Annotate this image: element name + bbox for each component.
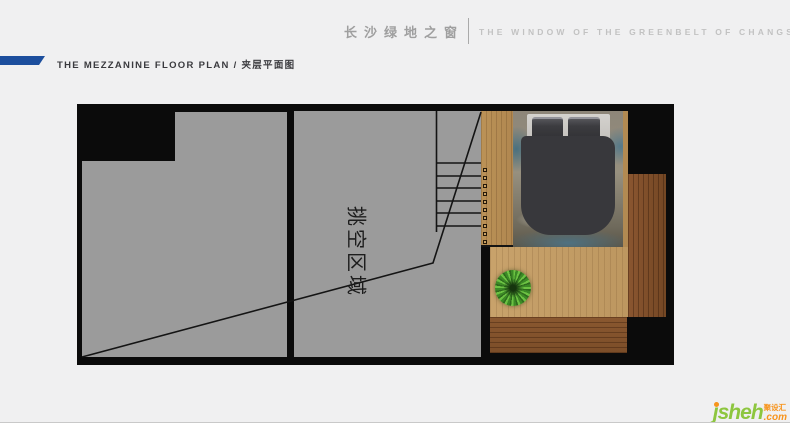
void-area-label: 挑空区域 <box>344 206 373 298</box>
logo-tld: .com <box>764 413 787 422</box>
page-title: THE MEZZANINE FLOOR PLAN / 夹层平面图 <box>57 57 295 71</box>
logo-wordmark: jsheh <box>713 404 763 422</box>
plan-line-overlay <box>77 104 674 365</box>
brand-name-english: THE WINDOW OF THE GREENBELT OF CHANGSHA <box>479 27 790 37</box>
stair-treads <box>436 163 481 226</box>
logo-j-dot <box>714 402 719 407</box>
floor-plan: 挑空区域 <box>77 104 674 365</box>
brand-name-chinese: 长沙绿地之窗 <box>344 22 464 41</box>
watermark-logo: jsheh 聚设汇 .com <box>713 402 787 422</box>
section-line <box>82 112 481 357</box>
title-accent-bar <box>0 56 45 65</box>
brand-divider-line <box>468 18 469 44</box>
presentation-slide: 长沙绿地之窗 THE WINDOW OF THE GREENBELT OF CH… <box>0 0 790 423</box>
